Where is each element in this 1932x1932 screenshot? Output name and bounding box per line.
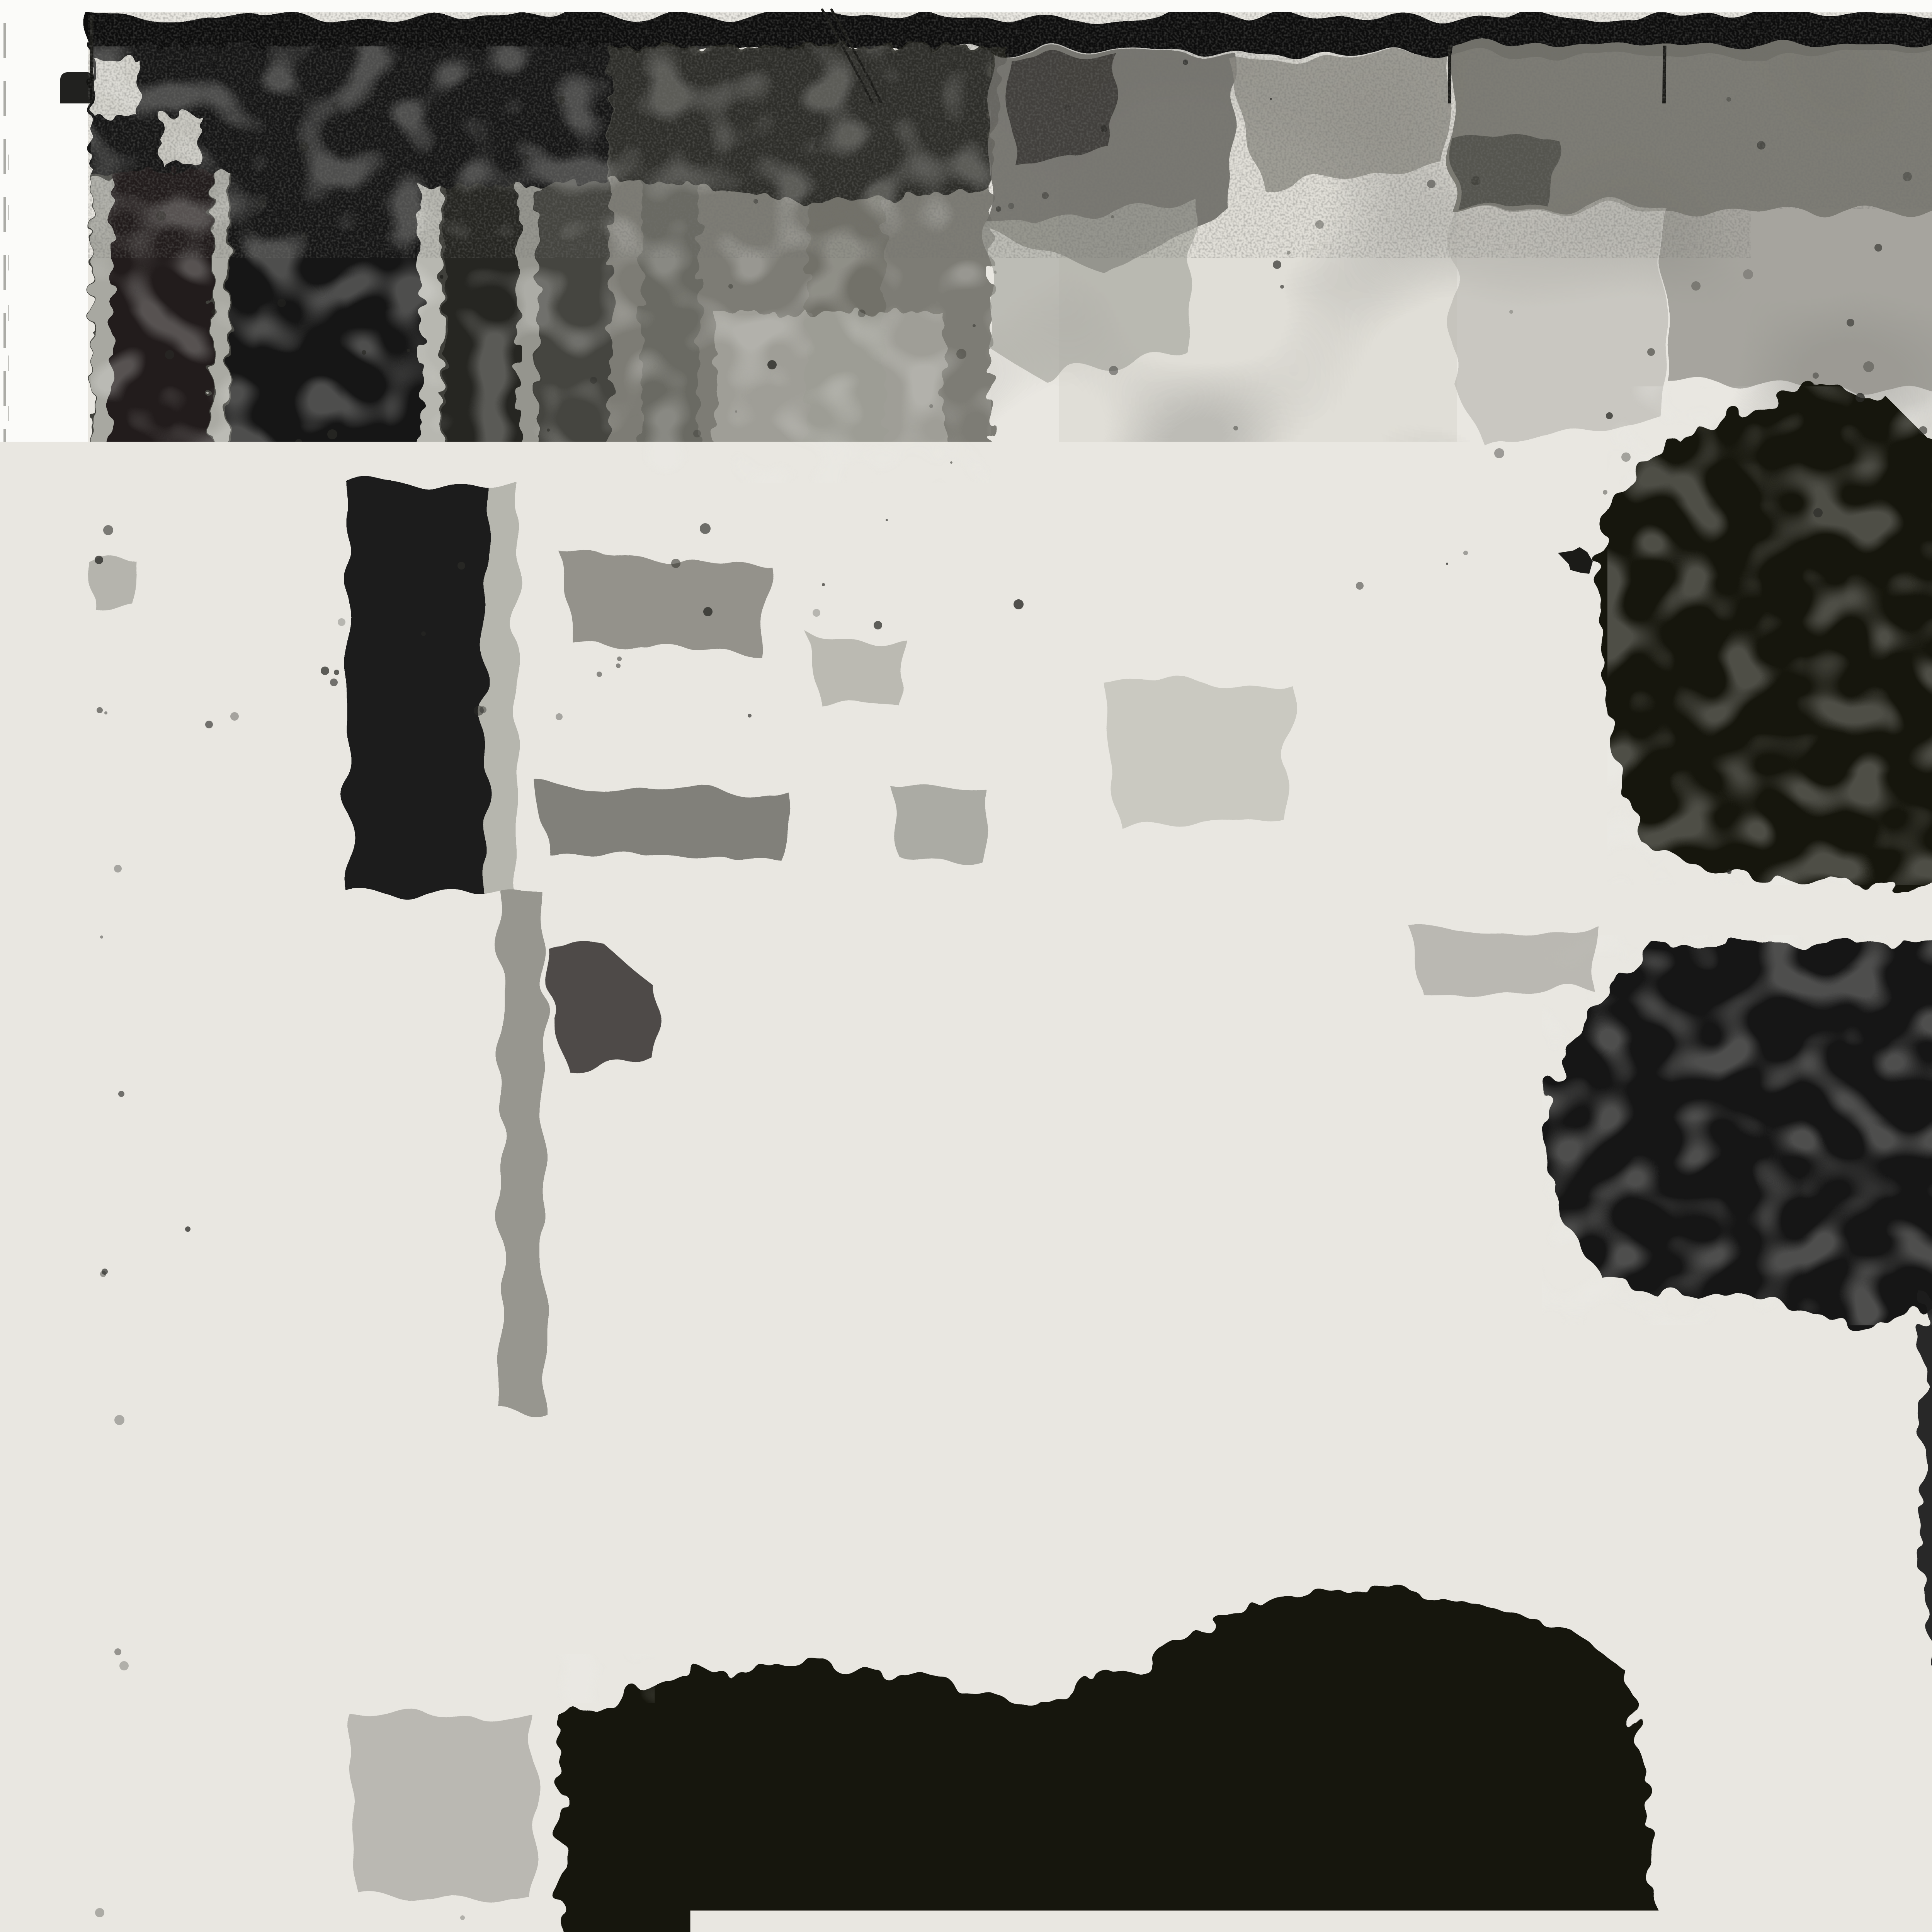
svg-text:2: 2 [33, 493, 63, 545]
